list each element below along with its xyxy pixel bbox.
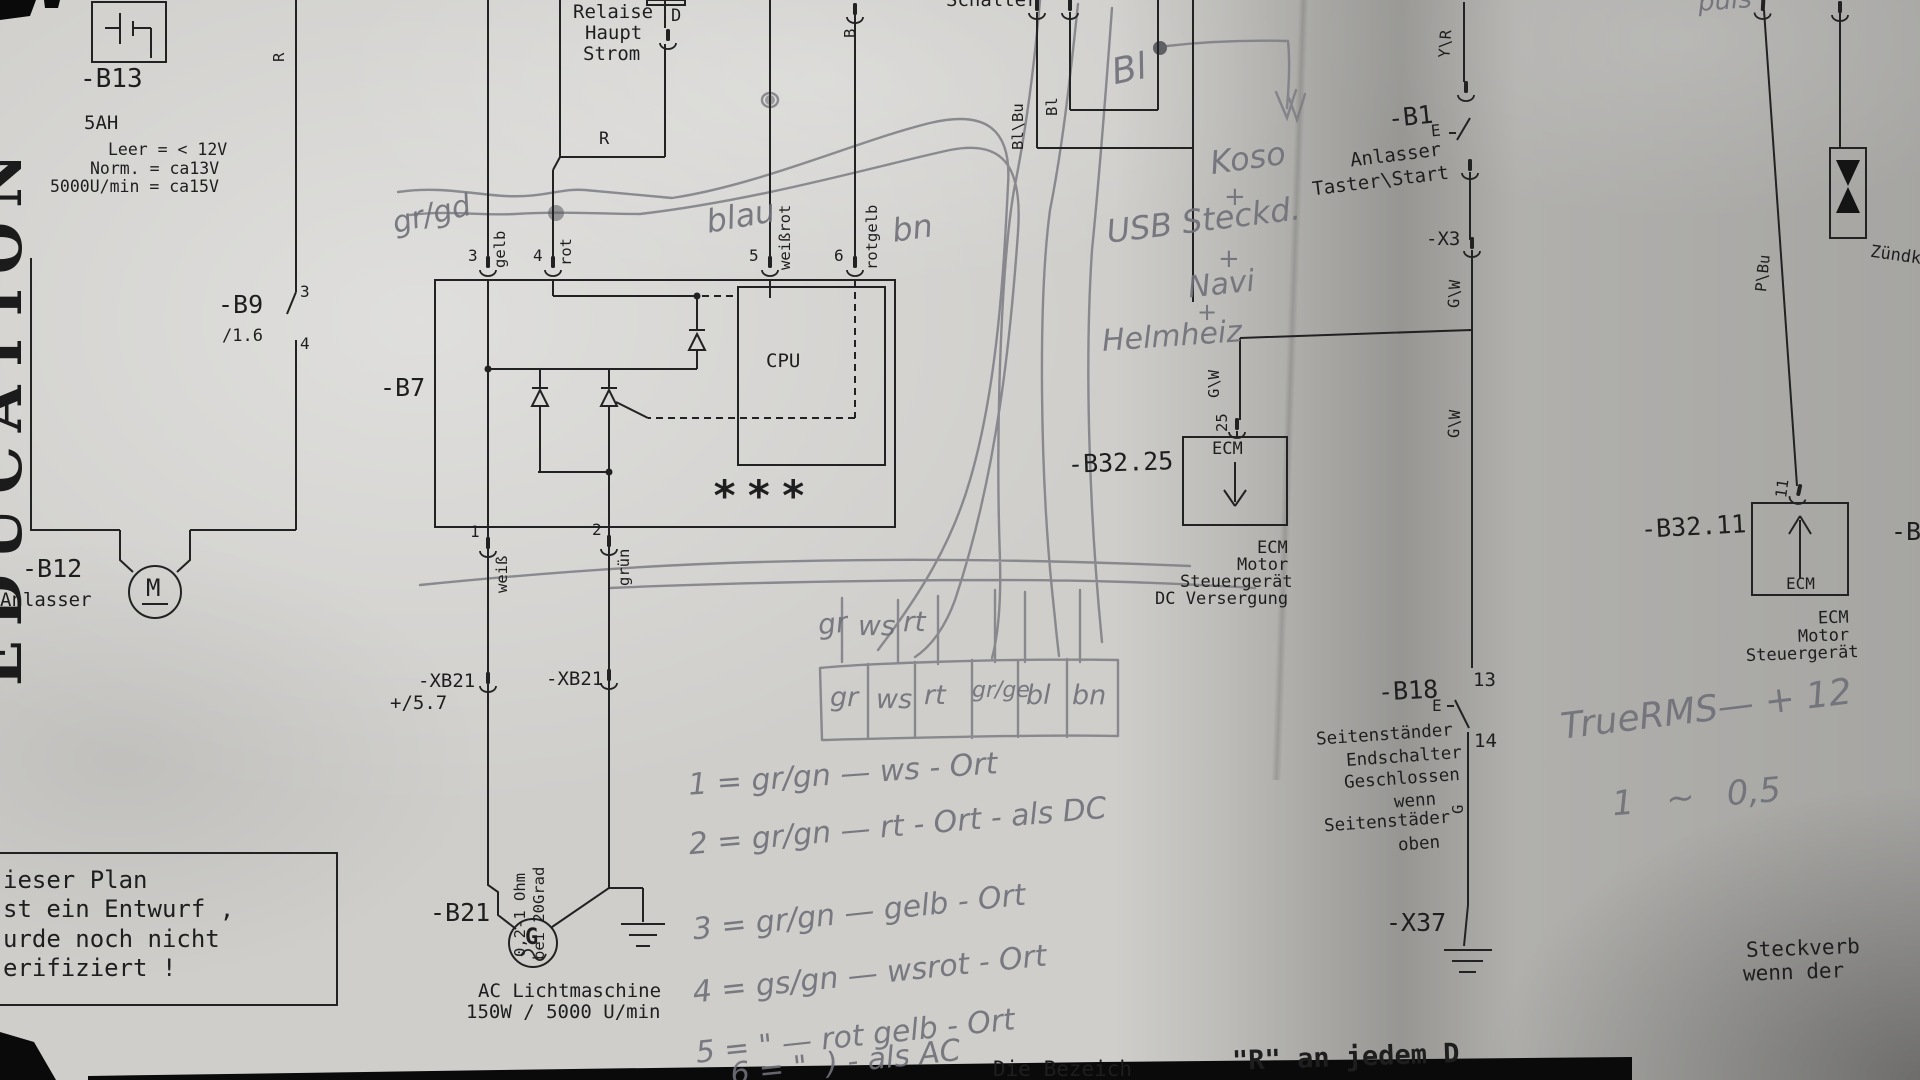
ecm25-pin: 25 [1214,404,1230,432]
pencil-blob-pin4 [548,205,564,221]
battery-spec-1: Leer = < 12V [108,141,227,158]
ecm11-pin: 11 [1773,469,1793,499]
x37-label: -X37 [1386,910,1446,936]
connector-icon [847,256,863,276]
battery-id: -B13 [80,66,143,93]
b12-id: -B12 [22,556,82,582]
draft-note-line-2: st ein Entwurf , [3,897,234,922]
hw-conn-above-rt: rt [903,608,926,636]
b7-pin-1: 1 [470,524,480,541]
ecm11-id-cut: -B3 [1891,519,1920,545]
hw-conn-cell-1: gr [830,684,858,711]
cpu-box [738,287,885,465]
hw-conn-cell-3: rt [924,682,946,709]
junction-dot [694,293,701,300]
hw-top-cut: puls [1697,0,1752,16]
b18-id: -B18 [1377,676,1439,705]
hw-conn-above-ws: ws [858,612,896,640]
wire-color-weiss: weiß [494,538,510,593]
regulator-box [435,280,895,527]
switch-title: Schalter [946,0,1038,11]
b21-id: -B21 [430,900,490,926]
b9-id: -B9 [218,292,263,318]
xb21-ref: +/5.7 [390,694,447,714]
draft-note-line-1: ieser Plan [3,868,148,893]
wire-label-r: R [271,28,287,62]
relay-line-2: Haupt [585,24,642,44]
hw-conn-above-gr: gr [817,609,849,640]
schematic-photo: EDUCATION [0,0,1920,1080]
b9-pin-3: 3 [300,284,310,301]
wire-label-bl: Bl [1044,88,1060,116]
cpu-label: CPU [766,352,800,372]
connector-icon [1754,0,1771,19]
steckverb-line-2: wenn der [1743,959,1845,985]
generator-ohm: 0,2-1 Ohm [512,845,528,957]
wire-label-gw-1: G\W [1446,260,1465,309]
hw-wire-bn: bn [890,209,935,246]
b18-pin-14: 14 [1474,732,1497,752]
connector-icon [1458,81,1474,101]
wire-color-rotgelb: rotgelb [864,190,880,270]
hw-wire-bl: Bl [1109,49,1150,91]
b7-pin-3: 3 [468,248,478,265]
hw-conn-cell-2: ws [876,686,912,713]
wire-color-weissrot: weißrot [777,190,793,270]
hw-koso: Koso [1208,137,1287,179]
motor-symbol: M [146,576,160,601]
b18-e-symbol: E [1432,698,1442,715]
generator-grad: bei 20Grad [531,842,547,960]
b18-line-6: oben [1397,834,1440,855]
xb21-right-label: -XB21 [546,670,603,690]
b18-wire-g: G [1450,792,1466,814]
b1-e-symbol: E [1430,123,1441,141]
b12-name: Anlasser [0,591,92,611]
relay-line-3: Strom [583,45,640,65]
bottom-note-left: Die Bezeich [993,1058,1132,1080]
ecm25-id: -B32.25 [1068,448,1174,478]
b9-pin-4: 4 [300,336,310,353]
generator-caption-2: 150W / 5000 U/min [466,1003,660,1023]
b7-pin-6: 6 [834,248,844,265]
junction-dot [606,469,613,476]
b1-id: -B1 [1387,102,1435,133]
ecm11-id: -B32.11 [1640,511,1747,543]
ecm11-line-3: Steuergerät [1746,644,1859,666]
ecm11-box-label: ECM [1786,576,1815,593]
relay-pin-d: D [671,8,681,26]
sparkplug-bowtie-icon [1836,160,1860,213]
battery-spec-3: 5000U/min = ca15V [50,178,219,195]
xb21-left-label: -XB21 [418,672,475,692]
draft-note-line-4: erifiziert ! [3,956,176,981]
connector-icon [660,29,676,49]
b9-ref: /1.6 [222,328,263,346]
wire-color-gruen: grün [616,536,632,586]
b7-pin-5: 5 [749,248,759,265]
steckverb-line-1: Steckverb [1746,935,1860,961]
wire-label-blbu: Bl\Bu [1010,90,1026,150]
wire-color-gelb: gelb [492,206,508,268]
ecm25-box-label: ECM [1212,441,1243,459]
draft-note-line-3: urde noch nicht [3,927,220,952]
schematic-dashed-wires [648,280,855,418]
wire-color-rot: rot [558,224,574,266]
junction-dot [485,366,492,373]
hw-conn-cell-6: bn [1072,682,1106,709]
generator-caption-1: AC Lichtmaschine [478,982,661,1002]
hw-conn-cell-5: bl [1026,682,1051,709]
b18-pin-13: 13 [1473,671,1496,691]
wire-label-gw-2: G\W [1446,390,1465,439]
relay-wire-r: R [599,131,609,149]
pencil-junction-dot [1153,41,1167,55]
relay-line-1: Relaise [573,3,653,23]
b7-stars: *** [712,474,815,518]
wire-label-yr: Y\R [1436,11,1455,58]
x3-label: -X3 [1426,230,1460,250]
b7-id: -B7 [380,375,425,401]
b7-pin-4: 4 [533,248,543,265]
wire-label-b: B [842,12,858,38]
battery-box [92,2,166,62]
battery-spec-2: Norm. = ca13V [90,160,219,177]
battery-capacity: 5AH [84,114,118,134]
hw-conn-cell-4: gr/ge [972,680,1030,702]
wire-label-gw-branch: G\W [1206,350,1222,398]
ecm25-line-4: DC Versergung [1155,591,1288,609]
b7-pin-2: 2 [592,522,602,539]
